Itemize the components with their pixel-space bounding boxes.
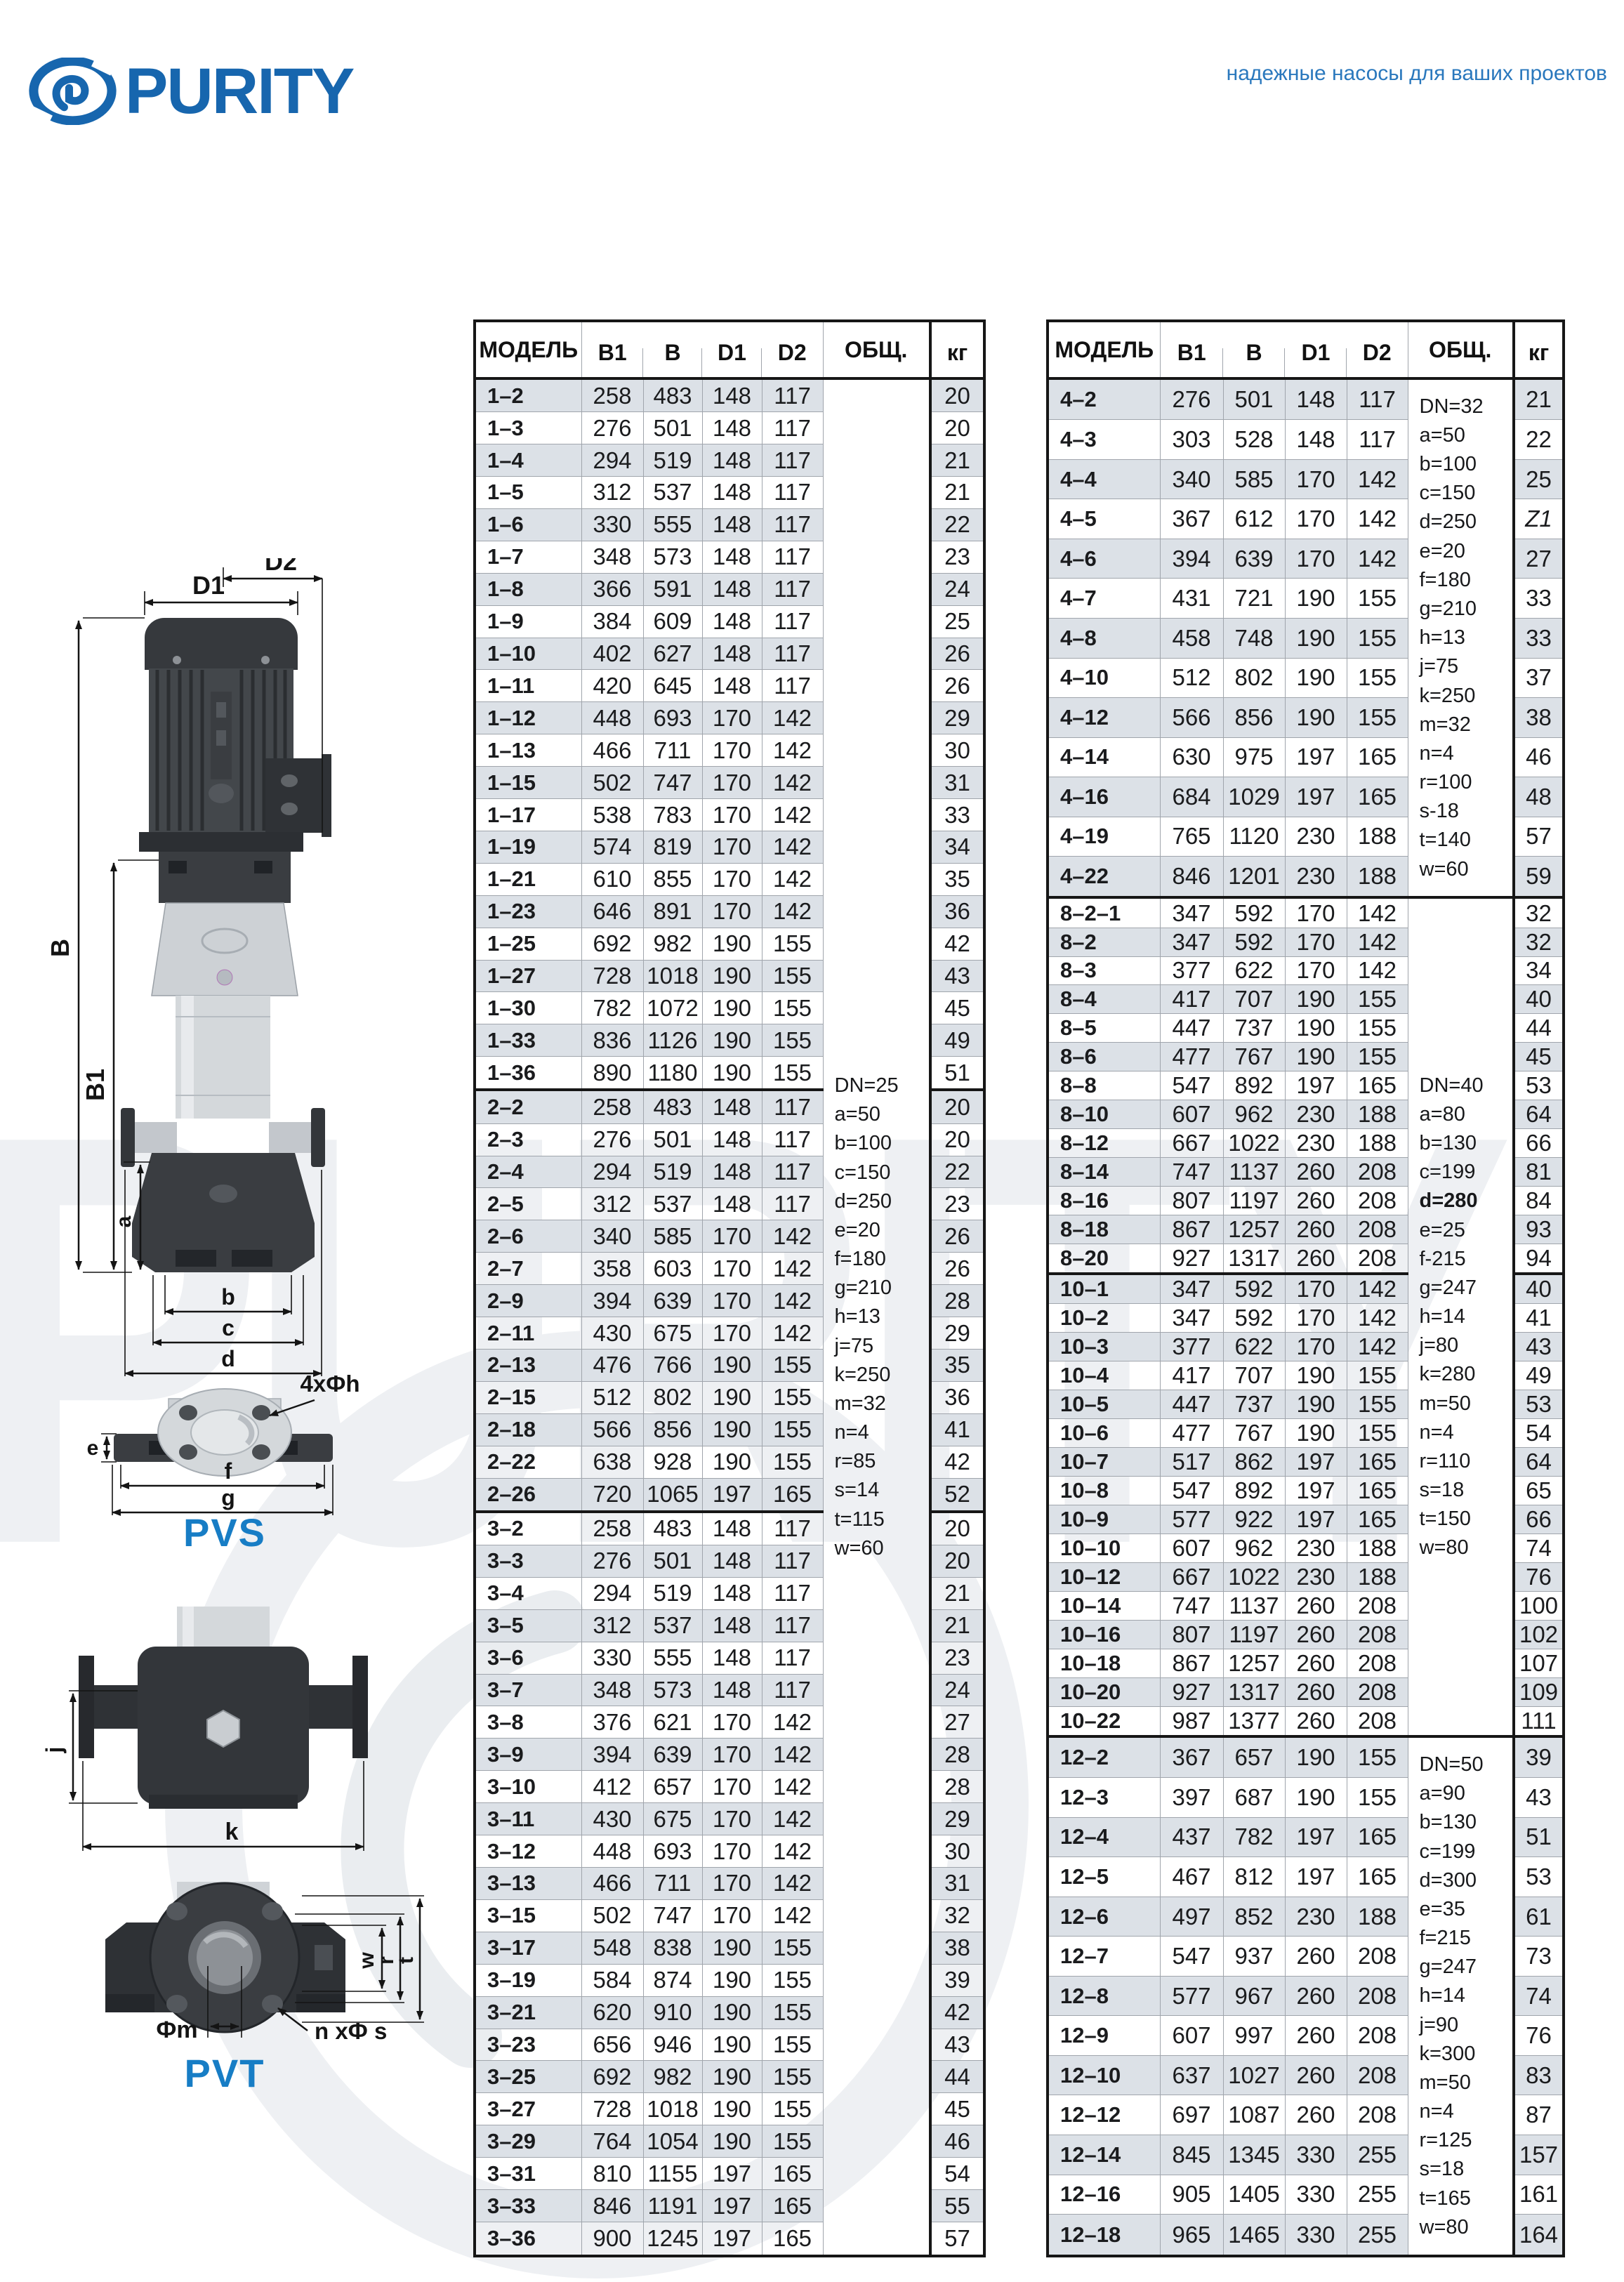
value-cell: 148 (702, 508, 762, 541)
value-cell: 190 (702, 1413, 762, 1446)
col-header-obsh: ОБЩ. (823, 321, 930, 378)
kg-cell: 33 (1514, 618, 1564, 658)
value-cell: 208 (1347, 1649, 1408, 1677)
kg-cell: 23 (930, 1188, 984, 1220)
value-cell: 197 (702, 2222, 762, 2256)
kg-cell: 20 (930, 1090, 984, 1123)
value-cell: 155 (1347, 618, 1408, 658)
kg-cell: 49 (1514, 1361, 1564, 1390)
value-cell: 190 (702, 2125, 762, 2158)
kg-cell: 46 (1514, 737, 1564, 777)
value-cell: 197 (1285, 1448, 1347, 1477)
value-cell: 812 (1223, 1857, 1285, 1897)
diagram-pvt: j k w r t Фm n xФ s PVT (35, 1594, 442, 2099)
kg-cell: 53 (1514, 1390, 1564, 1419)
value-cell: 208 (1347, 1591, 1408, 1620)
value-cell: 555 (643, 508, 702, 541)
value-cell: 687 (1223, 1778, 1285, 1818)
value-cell: 190 (702, 928, 762, 960)
value-cell: 1137 (1223, 1591, 1285, 1620)
pvs-caption: PVS (183, 1510, 266, 1555)
model-cell: 3–3 (475, 1545, 581, 1577)
value-cell: 190 (1285, 1014, 1347, 1043)
value-cell: 188 (1347, 1897, 1408, 1937)
value-cell: 347 (1160, 897, 1223, 928)
value-cell: 807 (1160, 1187, 1223, 1215)
value-cell: 197 (702, 2190, 762, 2222)
kg-cell: 94 (1514, 1244, 1564, 1274)
value-cell: 767 (1223, 1419, 1285, 1448)
value-cell: 891 (643, 895, 702, 928)
value-cell: 190 (1285, 1043, 1347, 1071)
value-cell: 347 (1160, 928, 1223, 956)
value-cell: 197 (1285, 1857, 1347, 1897)
value-cell: 190 (702, 2093, 762, 2125)
value-cell: 190 (1285, 1419, 1347, 1448)
value-cell: 117 (1347, 378, 1408, 420)
value-cell: 148 (702, 605, 762, 638)
value-cell: 927 (1160, 1244, 1223, 1274)
col-header-d2: D2 (1347, 321, 1408, 378)
model-cell: 1–25 (475, 928, 581, 960)
value-cell: 294 (581, 1577, 643, 1609)
value-cell: 430 (581, 1803, 643, 1835)
junction-box (265, 758, 323, 833)
col-header-b1: B1 (581, 321, 643, 378)
value-cell: 417 (1160, 985, 1223, 1014)
value-cell: 819 (643, 831, 702, 863)
value-cell: 155 (762, 2125, 823, 2158)
model-cell: 10–2 (1048, 1304, 1160, 1333)
dim-label-t: t (395, 1957, 418, 1964)
value-cell: 764 (581, 2125, 643, 2158)
model-cell: 1–2 (475, 378, 581, 412)
value-cell: 170 (702, 1317, 762, 1350)
value-cell: 170 (702, 831, 762, 863)
kg-cell: 28 (930, 1285, 984, 1317)
dim-label-e: e (87, 1437, 99, 1460)
kg-cell: 24 (930, 573, 984, 605)
value-cell: 845 (1160, 2135, 1223, 2175)
value-cell: 208 (1347, 2016, 1408, 2056)
kg-cell: 61 (1514, 1897, 1564, 1937)
model-cell: 2–11 (475, 1317, 581, 1350)
value-cell: 170 (702, 767, 762, 799)
value-cell: 208 (1347, 2095, 1408, 2135)
value-cell: 117 (762, 378, 823, 412)
value-cell: 148 (702, 1545, 762, 1577)
value-cell: 747 (643, 1899, 702, 1932)
discharge-flange (311, 1108, 325, 1167)
model-cell: 3–5 (475, 1609, 581, 1642)
model-cell: 12–8 (1048, 1976, 1160, 2016)
model-cell: 3–19 (475, 1964, 581, 1996)
model-cell: 8–5 (1048, 1014, 1160, 1043)
note-cell: DN=50a=90b=130c=199d=300e=35f=215g=247h=… (1408, 1736, 1514, 2256)
value-cell: 585 (643, 1220, 702, 1253)
value-cell: 1029 (1223, 777, 1285, 817)
model-cell: 1–19 (475, 831, 581, 863)
kg-cell: 57 (930, 2222, 984, 2256)
value-cell: 190 (1285, 1361, 1347, 1390)
model-cell: 3–6 (475, 1642, 581, 1674)
kg-cell: 44 (930, 2061, 984, 2093)
kg-cell: 42 (930, 928, 984, 960)
value-cell: 148 (702, 1156, 762, 1188)
kg-cell: 35 (930, 863, 984, 895)
value-cell: 707 (1223, 1361, 1285, 1390)
value-cell: 519 (643, 1577, 702, 1609)
model-cell: 3–9 (475, 1739, 581, 1771)
value-cell: 190 (1285, 579, 1347, 619)
value-cell: 208 (1347, 1677, 1408, 1706)
value-cell: 1405 (1223, 2175, 1285, 2215)
value-cell: 208 (1347, 1215, 1408, 1244)
model-cell: 8–20 (1048, 1244, 1160, 1274)
value-cell: 142 (1347, 897, 1408, 928)
value-cell: 190 (702, 1932, 762, 1964)
value-cell: 967 (1223, 1976, 1285, 2016)
kg-cell: 33 (1514, 579, 1564, 619)
kg-cell: 25 (1514, 459, 1564, 499)
kg-cell: 23 (930, 541, 984, 573)
value-cell: 577 (1160, 1505, 1223, 1534)
value-cell: 148 (702, 573, 762, 605)
col-header-model: МОДЕЛЬ (1048, 321, 1160, 378)
value-cell: 190 (702, 1057, 762, 1090)
kg-cell: 51 (930, 1057, 984, 1090)
value-cell: 230 (1285, 1897, 1347, 1937)
model-cell: 4–10 (1048, 658, 1160, 698)
model-cell: 10–7 (1048, 1448, 1160, 1477)
brand-logo: PURITY (28, 58, 353, 125)
value-cell: 1345 (1223, 2135, 1285, 2175)
value-cell: 260 (1285, 2055, 1347, 2095)
dim-label-b-total: B (46, 939, 74, 957)
value-cell: 638 (581, 1446, 643, 1478)
kg-cell: 26 (930, 1253, 984, 1285)
value-cell: 142 (762, 1739, 823, 1771)
kg-cell: 41 (1514, 1304, 1564, 1333)
value-cell: 330 (1285, 2215, 1347, 2256)
value-cell: 142 (762, 1771, 823, 1803)
dim-label-j: j (41, 1747, 67, 1754)
model-cell: 3–23 (475, 2029, 581, 2061)
value-cell: 142 (1347, 1333, 1408, 1361)
value-cell: 170 (1285, 459, 1347, 499)
value-cell: 117 (762, 1577, 823, 1609)
model-cell: 1–27 (475, 960, 581, 992)
model-cell: 3–25 (475, 2061, 581, 2093)
value-cell: 707 (1223, 985, 1285, 1014)
value-cell: 1201 (1223, 857, 1285, 898)
value-cell: 165 (1347, 1817, 1408, 1857)
model-cell: 4–14 (1048, 737, 1160, 777)
value-cell: 190 (1285, 985, 1347, 1014)
value-cell: 675 (643, 1803, 702, 1835)
kg-cell: 54 (1514, 1419, 1564, 1448)
value-cell: 348 (581, 541, 643, 573)
col-header-d1: D1 (702, 321, 762, 378)
kg-cell: 26 (930, 1220, 984, 1253)
dim-label-b1: B1 (81, 1069, 110, 1101)
model-cell: 10–22 (1048, 1706, 1160, 1736)
value-cell: 340 (1160, 459, 1223, 499)
dim-label-g: g (221, 1485, 235, 1510)
value-cell: 1257 (1223, 1649, 1285, 1677)
value-cell: 312 (581, 476, 643, 508)
value-cell: 155 (1347, 1736, 1408, 1778)
model-cell: 3–21 (475, 1996, 581, 2029)
value-cell: 358 (581, 1253, 643, 1285)
model-cell: 8–12 (1048, 1129, 1160, 1158)
value-cell: 591 (643, 573, 702, 605)
model-cell: 2–3 (475, 1123, 581, 1156)
value-cell: 142 (1347, 1304, 1408, 1333)
dim-label-d: d (221, 1346, 235, 1371)
kg-cell: 107 (1514, 1649, 1564, 1677)
value-cell: 155 (762, 1381, 823, 1413)
value-cell: 982 (643, 928, 702, 960)
value-cell: 142 (762, 1253, 823, 1285)
value-cell: 330 (581, 508, 643, 541)
model-cell: 1–8 (475, 573, 581, 605)
value-cell: 155 (762, 1932, 823, 1964)
value-cell: 1022 (1223, 1563, 1285, 1592)
model-cell: 1–13 (475, 734, 581, 767)
value-cell: 142 (762, 1868, 823, 1900)
model-cell: 3–7 (475, 1674, 581, 1706)
value-cell: 528 (1223, 420, 1285, 460)
kg-cell: 30 (930, 734, 984, 767)
kg-cell: 40 (1514, 985, 1564, 1014)
value-cell: 612 (1223, 499, 1285, 539)
model-cell: 1–11 (475, 670, 581, 702)
value-cell: 747 (643, 767, 702, 799)
value-cell: 622 (1223, 956, 1285, 985)
col-header-d1: D1 (1285, 321, 1347, 378)
value-cell: 497 (1160, 1897, 1223, 1937)
model-cell: 2–15 (475, 1381, 581, 1413)
value-cell: 637 (1160, 2055, 1223, 2095)
model-cell: 3–13 (475, 1868, 581, 1900)
pvt-right-flange (352, 1656, 368, 1758)
model-cell: 3–8 (475, 1706, 581, 1739)
model-cell: 1–21 (475, 863, 581, 895)
value-cell: 230 (1285, 1534, 1347, 1563)
value-cell: 208 (1347, 2055, 1408, 2095)
dim-label-fm: Фm (156, 2017, 197, 2043)
value-cell: 621 (643, 1706, 702, 1739)
value-cell: 294 (581, 1156, 643, 1188)
kg-cell: 20 (930, 1123, 984, 1156)
value-cell: 377 (1160, 956, 1223, 985)
model-cell: 1–36 (475, 1057, 581, 1090)
value-cell: 566 (1160, 698, 1223, 738)
value-cell: 603 (643, 1253, 702, 1285)
kg-cell: 21 (1514, 378, 1564, 420)
value-cell: 148 (702, 476, 762, 508)
model-cell: 3–15 (475, 1899, 581, 1932)
value-cell: 367 (1160, 499, 1223, 539)
value-cell: 585 (1223, 459, 1285, 499)
kg-cell: 43 (1514, 1778, 1564, 1818)
value-cell: 155 (762, 1349, 823, 1381)
value-cell: 117 (762, 508, 823, 541)
model-cell: 10–20 (1048, 1677, 1160, 1706)
model-cell: 12–4 (1048, 1817, 1160, 1857)
kg-cell: 39 (930, 1964, 984, 1996)
value-cell: 340 (581, 1220, 643, 1253)
value-cell: 142 (762, 1899, 823, 1932)
kg-cell: 45 (930, 992, 984, 1024)
value-cell: 188 (1347, 857, 1408, 898)
value-cell: 852 (1223, 1897, 1285, 1937)
value-cell: 148 (702, 378, 762, 412)
value-cell: 1155 (643, 2158, 702, 2190)
kg-cell: 76 (1514, 1563, 1564, 1592)
value-cell: 477 (1160, 1419, 1223, 1448)
kg-cell: 35 (930, 1349, 984, 1381)
model-cell: 4–6 (1048, 539, 1160, 579)
value-cell: 230 (1285, 817, 1347, 857)
value-cell: 117 (1347, 420, 1408, 460)
value-cell: 170 (702, 1868, 762, 1900)
value-cell: 155 (1347, 579, 1408, 619)
bolt-count-label-pvs: 4xФh (300, 1371, 359, 1397)
dim-label-b-small: b (221, 1284, 235, 1310)
value-cell: 965 (1160, 2215, 1223, 2256)
value-cell: 1317 (1223, 1677, 1285, 1706)
kg-cell: 20 (930, 378, 984, 412)
note-cell: DN=32a=50b=100c=150d=250e=20f=180g=210h=… (1408, 378, 1514, 897)
logo-icon (28, 58, 118, 125)
kg-cell: 53 (1514, 1071, 1564, 1100)
value-cell: 165 (762, 2158, 823, 2190)
value-cell: 937 (1223, 1937, 1285, 1977)
value-cell: 190 (1285, 1736, 1347, 1778)
value-cell: 537 (643, 1188, 702, 1220)
kg-cell: 29 (930, 1317, 984, 1350)
value-cell: 170 (702, 895, 762, 928)
dimensions-table-left: МОДЕЛЬB1BD1D2ОБЩ.кг1–2258483148117DN=25a… (473, 319, 986, 2257)
kg-cell: 46 (930, 2125, 984, 2158)
kg-cell: 20 (930, 412, 984, 444)
value-cell: 720 (581, 1478, 643, 1512)
value-cell: 807 (1160, 1620, 1223, 1649)
model-cell: 10–12 (1048, 1563, 1160, 1592)
value-cell: 197 (1285, 1071, 1347, 1100)
model-cell: 1–17 (475, 799, 581, 831)
model-cell: 1–12 (475, 702, 581, 734)
value-cell: 155 (1347, 985, 1408, 1014)
value-cell: 170 (1285, 928, 1347, 956)
kg-cell: 64 (1514, 1100, 1564, 1129)
value-cell: 402 (581, 638, 643, 670)
value-cell: 512 (1160, 658, 1223, 698)
value-cell: 1257 (1223, 1215, 1285, 1244)
value-cell: 155 (1347, 1778, 1408, 1818)
value-cell: 910 (643, 1996, 702, 2029)
value-cell: 230 (1285, 1100, 1347, 1129)
value-cell: 537 (643, 1609, 702, 1642)
bolt-count-label-pvt: n xФ s (315, 2018, 387, 2044)
value-cell: 855 (643, 863, 702, 895)
value-cell: 155 (762, 2029, 823, 2061)
kg-cell: 21 (930, 1577, 984, 1609)
value-cell: 190 (1285, 618, 1347, 658)
value-cell: 802 (643, 1381, 702, 1413)
model-cell: 1–5 (475, 476, 581, 508)
kg-cell: 93 (1514, 1215, 1564, 1244)
value-cell: 1054 (643, 2125, 702, 2158)
value-cell: 260 (1285, 1976, 1347, 2016)
value-cell: 646 (581, 895, 643, 928)
value-cell: 190 (1285, 658, 1347, 698)
model-cell: 4–12 (1048, 698, 1160, 738)
value-cell: 190 (702, 1446, 762, 1478)
value-cell: 148 (702, 670, 762, 702)
model-cell: 12–14 (1048, 2135, 1160, 2175)
logo-text: PURITY (125, 59, 353, 124)
kg-cell: 65 (1514, 1477, 1564, 1505)
value-cell: 155 (762, 960, 823, 992)
value-cell: 190 (1285, 1390, 1347, 1419)
value-cell: 165 (1347, 1477, 1408, 1505)
value-cell: 592 (1223, 1304, 1285, 1333)
value-cell: 148 (702, 638, 762, 670)
model-cell: 8–18 (1048, 1215, 1160, 1244)
value-cell: 170 (1285, 539, 1347, 579)
value-cell: 117 (762, 1545, 823, 1577)
value-cell: 155 (762, 1024, 823, 1057)
kg-cell: 43 (1514, 1333, 1564, 1361)
value-cell: 867 (1160, 1215, 1223, 1244)
value-cell: 117 (762, 638, 823, 670)
value-cell: 165 (1347, 1857, 1408, 1897)
value-cell: 170 (702, 1285, 762, 1317)
value-cell: 117 (762, 1674, 823, 1706)
value-cell: 892 (1223, 1477, 1285, 1505)
value-cell: 737 (1223, 1014, 1285, 1043)
value-cell: 260 (1285, 1187, 1347, 1215)
value-cell: 737 (1223, 1390, 1285, 1419)
value-cell: 312 (581, 1609, 643, 1642)
value-cell: 197 (702, 2158, 762, 2190)
model-cell: 10–10 (1048, 1534, 1160, 1563)
model-cell: 1–10 (475, 638, 581, 670)
value-cell: 260 (1285, 2095, 1347, 2135)
value-cell: 466 (581, 734, 643, 767)
value-cell: 165 (1347, 1505, 1408, 1534)
kg-cell: 36 (930, 895, 984, 928)
dim-label-c: c (222, 1315, 235, 1340)
value-cell: 548 (581, 1932, 643, 1964)
col-header-kg: кг (1514, 321, 1564, 378)
kg-cell: 45 (1514, 1043, 1564, 1071)
model-cell: 8–16 (1048, 1187, 1160, 1215)
model-cell: 4–19 (1048, 817, 1160, 857)
value-cell: 155 (1347, 1361, 1408, 1390)
note-cell: DN=40a=80b=130c=199d=280e=25f-215g=247h=… (1408, 897, 1514, 1736)
value-cell: 728 (581, 960, 643, 992)
value-cell: 260 (1285, 1620, 1347, 1649)
value-cell: 155 (762, 992, 823, 1024)
kg-cell: 41 (930, 1413, 984, 1446)
model-cell: 8–14 (1048, 1158, 1160, 1187)
value-cell: 148 (1285, 378, 1347, 420)
model-cell: 1–15 (475, 767, 581, 799)
